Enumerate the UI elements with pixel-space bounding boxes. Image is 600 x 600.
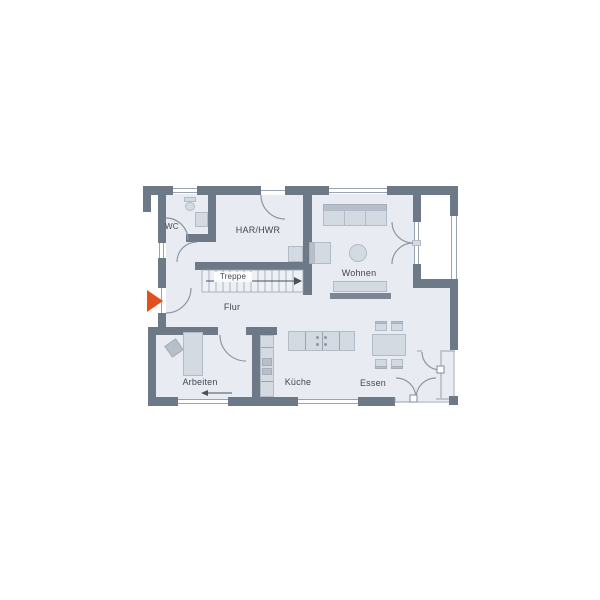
room-label-treppe: Treppe xyxy=(214,272,252,282)
door-swing-french-upper xyxy=(392,222,413,243)
room-label-kueche: Küche xyxy=(281,377,315,387)
terrace-post xyxy=(410,395,417,402)
entrance-arrow-icon xyxy=(147,290,163,312)
plan-overlay xyxy=(0,0,600,600)
door-swing-har xyxy=(177,242,197,262)
door-swing-har-exterior xyxy=(261,195,285,219)
door-swing-french-lower xyxy=(392,243,413,264)
room-label-essen: Essen xyxy=(357,378,389,388)
floor-plan: WC HAR/HWR Treppe Wohnen Flur Arbeiten K… xyxy=(0,0,600,600)
room-label-har-hwr: HAR/HWR xyxy=(228,225,288,235)
room-label-wohnen: Wohnen xyxy=(334,268,384,278)
terrace-corner-post xyxy=(449,396,458,405)
room-label-wc: WC xyxy=(165,222,185,232)
room-label-arbeiten: Arbeiten xyxy=(175,377,225,387)
door-swing-arbeiten xyxy=(220,335,246,361)
terrace-post xyxy=(437,366,444,373)
arbeiten-window-arrow-icon xyxy=(201,390,232,396)
glass-corner xyxy=(395,351,455,403)
room-label-flur: Flur xyxy=(217,302,247,312)
door-swing-entrance xyxy=(166,288,191,313)
door-swing-terrace-right xyxy=(416,378,436,398)
